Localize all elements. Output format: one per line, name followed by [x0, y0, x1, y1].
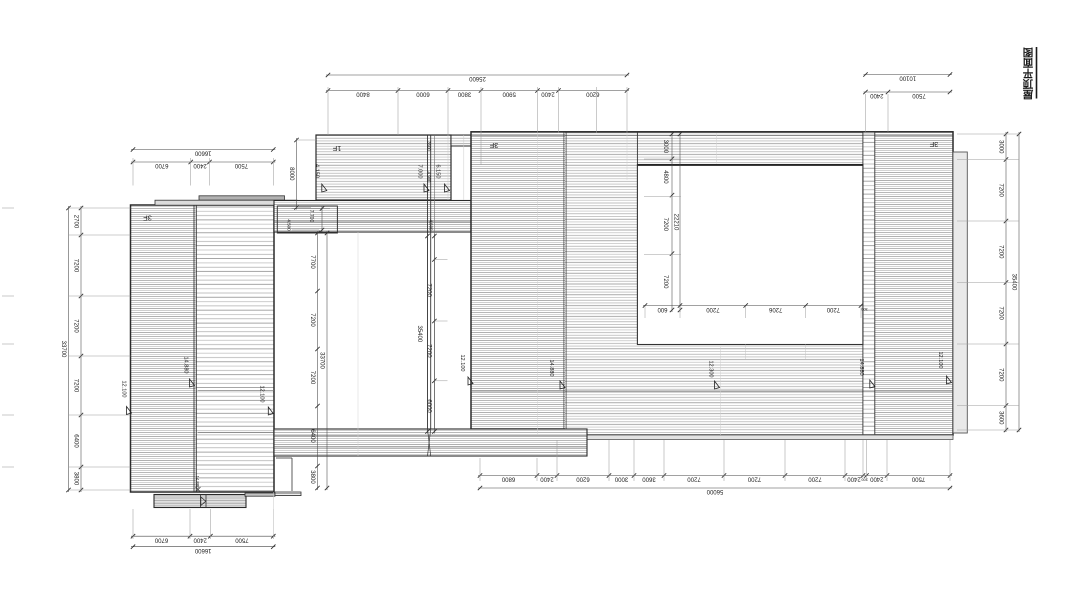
svg-text:3000: 3000: [662, 140, 668, 154]
svg-text:6200: 6200: [576, 476, 590, 482]
svg-text:25600: 25600: [468, 75, 485, 81]
svg-text:3000: 3000: [998, 140, 1004, 154]
svg-text:6200: 6200: [585, 91, 599, 97]
svg-text:7200: 7200: [309, 313, 315, 327]
svg-text:6800: 6800: [501, 476, 515, 482]
svg-text:5900: 5900: [502, 91, 516, 97]
svg-text:14.880: 14.880: [195, 476, 200, 489]
svg-text:12.100: 12.100: [937, 351, 943, 368]
svg-text:6000: 6000: [416, 91, 430, 97]
svg-text:7200: 7200: [73, 379, 79, 393]
svg-text:7200: 7200: [747, 476, 761, 482]
svg-text:3F: 3F: [929, 140, 938, 149]
svg-text:7200: 7200: [662, 275, 668, 289]
svg-text:7.700: 7.700: [308, 210, 314, 223]
svg-text:3600: 3600: [642, 476, 656, 482]
svg-text:6400: 6400: [73, 434, 79, 448]
svg-text:2400: 2400: [193, 536, 207, 542]
svg-text:7200: 7200: [426, 344, 432, 358]
svg-text:4800: 4800: [662, 170, 668, 184]
svg-text:7200: 7200: [662, 218, 668, 232]
svg-text:300: 300: [860, 307, 867, 312]
svg-text:10100: 10100: [899, 75, 916, 81]
svg-text:7500: 7500: [235, 536, 249, 542]
svg-text:14.880: 14.880: [858, 358, 864, 375]
svg-text:7206: 7206: [768, 306, 782, 312]
svg-text:33700: 33700: [60, 341, 66, 358]
svg-text:6.150: 6.150: [435, 165, 441, 179]
svg-text:7200: 7200: [706, 306, 720, 312]
svg-text:16600: 16600: [194, 150, 211, 156]
svg-text:7.000: 7.000: [417, 165, 423, 179]
svg-text:2700: 2700: [73, 215, 79, 229]
svg-text:3800: 3800: [457, 91, 471, 97]
svg-text:4.500: 4.500: [428, 220, 433, 232]
svg-text:3600: 3600: [998, 411, 1004, 425]
svg-text:2400: 2400: [869, 476, 883, 482]
svg-text:6000: 6000: [426, 399, 432, 413]
svg-text:7200: 7200: [998, 184, 1004, 198]
svg-text:7200: 7200: [998, 245, 1004, 259]
svg-text:4.150: 4.150: [314, 164, 320, 178]
svg-text:22210: 22210: [672, 214, 678, 231]
svg-text:3600: 3600: [427, 141, 432, 151]
svg-text:2400: 2400: [193, 162, 207, 168]
svg-text:7700: 7700: [309, 255, 315, 269]
svg-text:6400: 6400: [309, 429, 315, 443]
svg-text:2400: 2400: [541, 91, 555, 97]
svg-text:7500: 7500: [911, 476, 925, 482]
svg-text:7200: 7200: [73, 319, 79, 333]
svg-text:7500: 7500: [912, 92, 926, 98]
svg-text:7200: 7200: [826, 306, 840, 312]
svg-text:33700: 33700: [319, 352, 325, 369]
svg-text:7500: 7500: [234, 162, 248, 168]
svg-text:7200: 7200: [426, 284, 432, 298]
svg-text:35400: 35400: [416, 325, 422, 342]
svg-text:3000: 3000: [614, 476, 628, 482]
svg-text:2400: 2400: [847, 476, 861, 482]
svg-text:7200: 7200: [998, 307, 1004, 321]
svg-text:12.100: 12.100: [121, 380, 127, 397]
svg-text:12.100: 12.100: [459, 354, 465, 371]
svg-text:6700: 6700: [154, 536, 168, 542]
svg-text:8000: 8000: [288, 167, 294, 181]
svg-text:4.900: 4.900: [427, 172, 432, 184]
svg-text:56000: 56000: [706, 488, 723, 494]
svg-text:300: 300: [861, 477, 868, 482]
svg-text:6700: 6700: [154, 162, 168, 168]
svg-text:2400: 2400: [869, 92, 883, 98]
svg-text:3F: 3F: [489, 141, 498, 150]
svg-text:7200: 7200: [309, 371, 315, 385]
svg-text:12.300: 12.300: [708, 360, 714, 377]
svg-text:2400: 2400: [540, 476, 554, 482]
svg-text:12.100: 12.100: [259, 385, 265, 402]
svg-text:16600: 16600: [194, 547, 211, 553]
svg-text:3800: 3800: [309, 470, 315, 484]
svg-text:图: 图: [1023, 46, 1034, 58]
svg-text:3800: 3800: [73, 472, 79, 486]
svg-text:7200: 7200: [998, 368, 1004, 382]
svg-text:7200: 7200: [687, 476, 701, 482]
svg-text:7200: 7200: [73, 259, 79, 273]
svg-text:8400: 8400: [356, 91, 370, 97]
svg-text:3F: 3F: [143, 213, 152, 222]
svg-text:1F: 1F: [332, 144, 341, 153]
svg-text:14.880: 14.880: [183, 356, 189, 373]
svg-text:600: 600: [657, 306, 668, 312]
svg-text:14.880: 14.880: [548, 359, 554, 376]
svg-text:4.500: 4.500: [286, 219, 291, 231]
svg-text:7200: 7200: [808, 476, 822, 482]
